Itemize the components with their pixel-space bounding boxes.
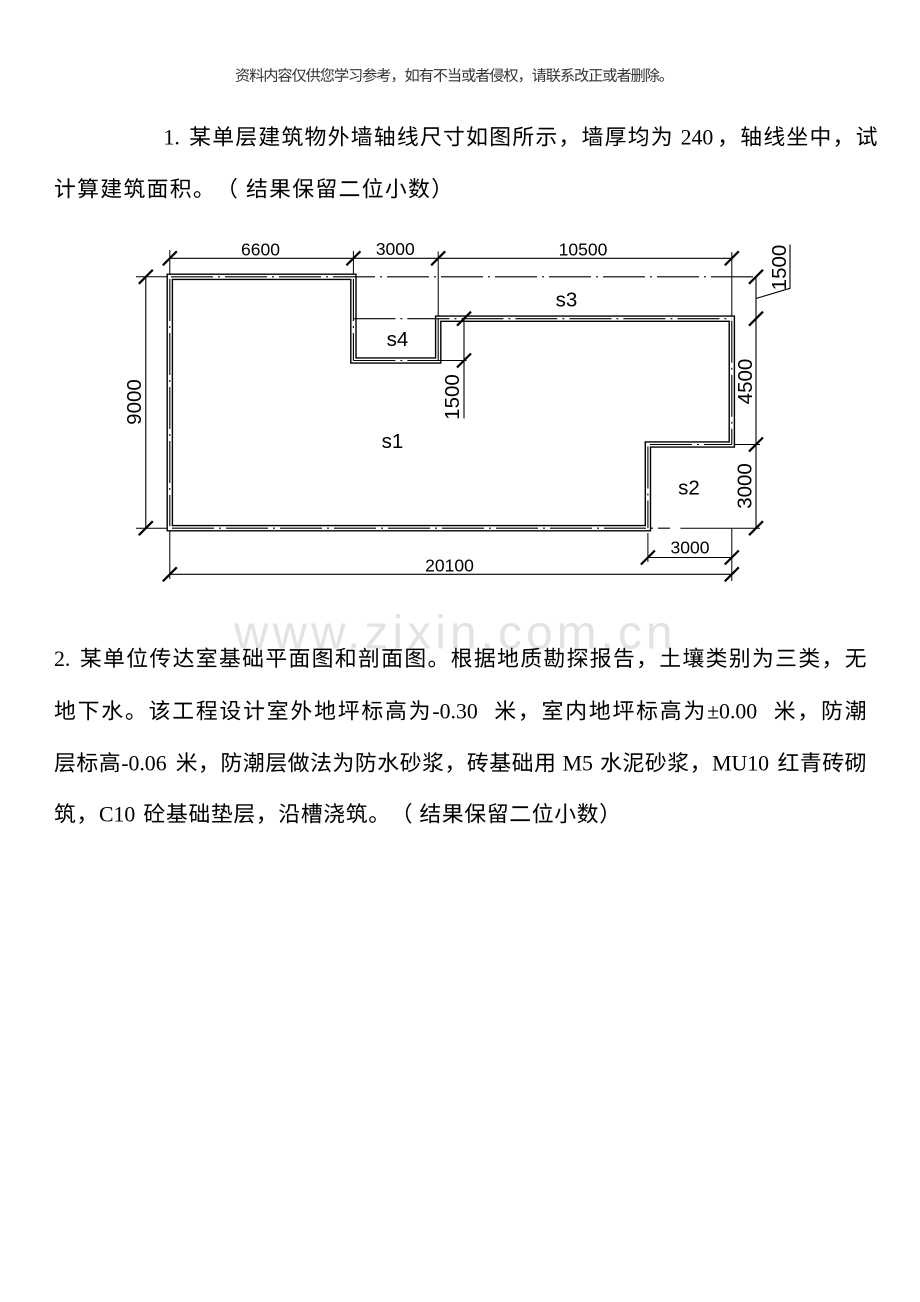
svg-text:1500: 1500	[441, 374, 464, 420]
svg-text:s4: s4	[387, 328, 409, 351]
svg-text:4500: 4500	[734, 359, 757, 405]
svg-text:3000: 3000	[733, 463, 756, 509]
svg-text:s1: s1	[382, 430, 404, 453]
svg-text:3000: 3000	[671, 537, 710, 557]
svg-text:C10: C10	[99, 803, 135, 827]
svg-text:10500: 10500	[559, 239, 608, 259]
svg-text:20100: 20100	[425, 555, 474, 575]
svg-text:3000: 3000	[376, 239, 415, 259]
svg-text:9000: 9000	[123, 379, 146, 425]
svg-text:1500: 1500	[768, 245, 791, 291]
svg-text:-0.30: -0.30	[432, 700, 478, 724]
svg-text:s3: s3	[556, 289, 578, 312]
svg-text:MU10: MU10	[712, 752, 769, 776]
svg-text:2.: 2.	[54, 647, 70, 671]
svg-text:240: 240	[681, 126, 714, 150]
svg-text:6600: 6600	[241, 240, 280, 260]
svg-text:-0.06: -0.06	[121, 752, 167, 776]
svg-text:M5: M5	[563, 752, 593, 776]
svg-text:s2: s2	[678, 477, 700, 500]
svg-text:1.: 1.	[164, 126, 180, 150]
svg-text:±0.00: ±0.00	[707, 700, 757, 724]
